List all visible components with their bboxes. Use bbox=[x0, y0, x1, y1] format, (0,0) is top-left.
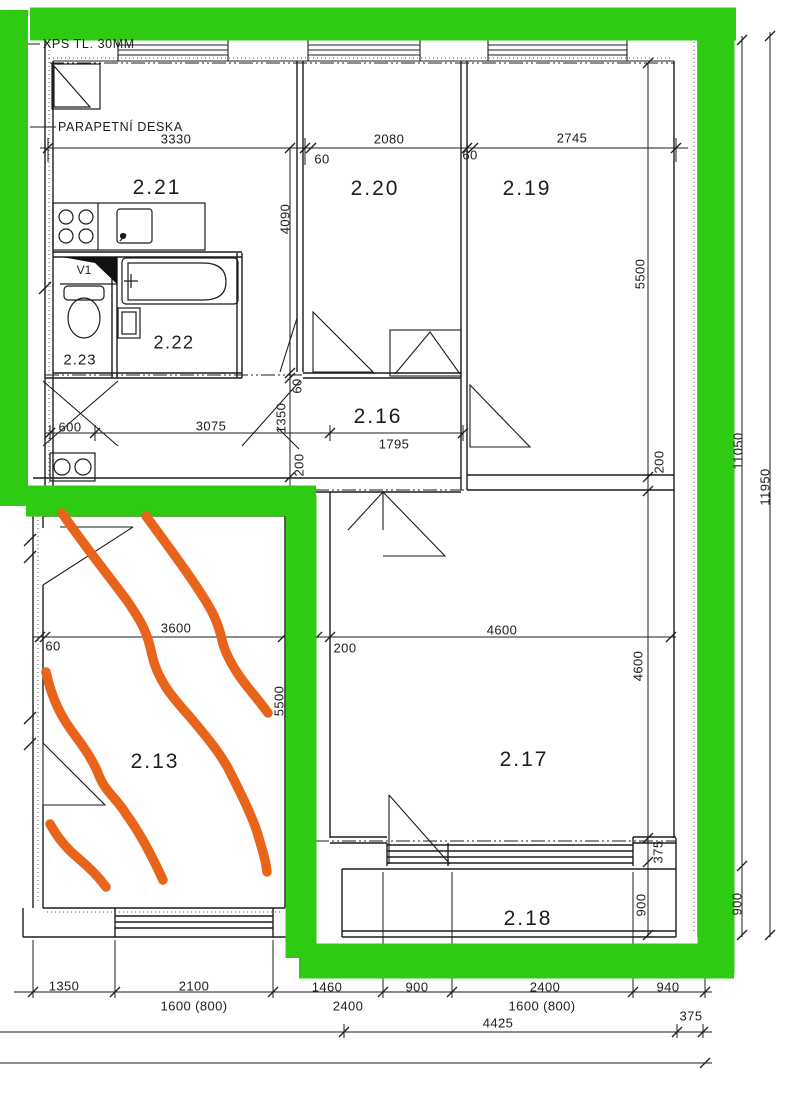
wardrobe-triangle bbox=[54, 66, 90, 107]
dim-4600-h: 4600 bbox=[487, 623, 518, 638]
dim-900-c: 900 bbox=[730, 893, 745, 916]
dim-940: 940 bbox=[657, 980, 680, 995]
dim-375-a: 375 bbox=[651, 841, 666, 864]
dim-2745: 2745 bbox=[557, 131, 588, 146]
dim-1600-800-a: 1600 (800) bbox=[161, 999, 228, 1014]
dim-11050: 11050 bbox=[731, 432, 746, 469]
dim-60-a: 60 bbox=[314, 152, 329, 167]
dim-200-b: 200 bbox=[292, 454, 307, 477]
room-label-2-18: 2.18 bbox=[504, 907, 553, 931]
door-swing-219 bbox=[470, 385, 530, 447]
dim-200-a: 200 bbox=[652, 451, 667, 474]
stove-burner bbox=[79, 210, 93, 224]
washbasin-inner bbox=[122, 312, 136, 334]
dim-1795: 1795 bbox=[379, 437, 410, 452]
dim-60-d: 60 bbox=[290, 378, 305, 393]
dim-1350-a: 1350 bbox=[274, 403, 289, 434]
door-swing-kitchen bbox=[280, 318, 297, 372]
floor-plan-drawing: XPS TL. 30MM PARAPETNÍ DESKA 2.21 2.20 2… bbox=[0, 0, 787, 1096]
bath-tap-cross bbox=[124, 274, 138, 288]
leader-lines bbox=[25, 44, 56, 127]
dim-60-b: 60 bbox=[462, 148, 477, 163]
dim-4425: 4425 bbox=[483, 1016, 514, 1031]
dim-3330: 3330 bbox=[161, 132, 192, 147]
dim-2080: 2080 bbox=[374, 132, 405, 147]
floor-plan-canvas bbox=[0, 0, 787, 1096]
orange-stroke-4 bbox=[50, 824, 106, 887]
dim-1350-b: 1350 bbox=[49, 979, 80, 994]
door-swing-217-balcony bbox=[389, 795, 450, 864]
room-label-2-21: 2.21 bbox=[133, 176, 182, 200]
dim-2400-b: 2400 bbox=[333, 999, 364, 1014]
orange-stroke-1 bbox=[62, 513, 267, 872]
room-label-2-19: 2.19 bbox=[503, 177, 552, 201]
orange-marker bbox=[46, 513, 268, 887]
dim-600: 600 bbox=[59, 420, 82, 435]
dim-200-c: 200 bbox=[334, 641, 357, 656]
room-label-2-16: 2.16 bbox=[354, 405, 403, 429]
extension-lines bbox=[33, 138, 705, 1038]
closet-doors bbox=[395, 332, 460, 374]
dim-5500-b: 5500 bbox=[272, 686, 287, 717]
dim-375-b: 375 bbox=[680, 1009, 703, 1024]
shaft-label-v1: V1 bbox=[77, 263, 92, 277]
room-label-2-23: 2.23 bbox=[63, 352, 96, 369]
stove-burner bbox=[59, 210, 73, 224]
room-label-2-17: 2.17 bbox=[500, 748, 549, 772]
stove-burner bbox=[79, 229, 93, 243]
insulation-note: XPS TL. 30MM bbox=[43, 37, 135, 51]
entry-doors bbox=[348, 492, 445, 556]
dim-60-c: 60 bbox=[45, 639, 60, 654]
dim-3075: 3075 bbox=[196, 419, 227, 434]
dim-2400-a: 2400 bbox=[530, 980, 561, 995]
dim-900-b: 900 bbox=[406, 980, 429, 995]
dim-2100: 2100 bbox=[179, 979, 210, 994]
dim-3600: 3600 bbox=[161, 621, 192, 636]
bathtub-outer bbox=[122, 258, 238, 304]
room-label-2-20: 2.20 bbox=[351, 177, 400, 201]
door-swing-220 bbox=[313, 312, 373, 372]
stove-burner bbox=[59, 229, 73, 243]
wc-bowl bbox=[68, 298, 100, 338]
dim-5500-a: 5500 bbox=[633, 259, 648, 290]
dim-11950: 11950 bbox=[758, 468, 773, 505]
dim-4600-v: 4600 bbox=[631, 651, 646, 682]
door-swing-wc bbox=[43, 381, 118, 446]
room-label-2-13: 2.13 bbox=[131, 750, 180, 774]
washer-knob bbox=[54, 459, 70, 475]
bathtub-inner bbox=[128, 263, 226, 300]
room-label-2-22: 2.22 bbox=[153, 333, 194, 354]
dim-1460: 1460 bbox=[312, 980, 343, 995]
wardrobe-box bbox=[52, 64, 100, 109]
washer-knob bbox=[75, 459, 91, 475]
dim-1600-800-b: 1600 (800) bbox=[509, 999, 576, 1014]
dim-4090: 4090 bbox=[278, 204, 293, 235]
dim-900-a: 900 bbox=[634, 894, 649, 917]
washer-box bbox=[50, 453, 95, 481]
